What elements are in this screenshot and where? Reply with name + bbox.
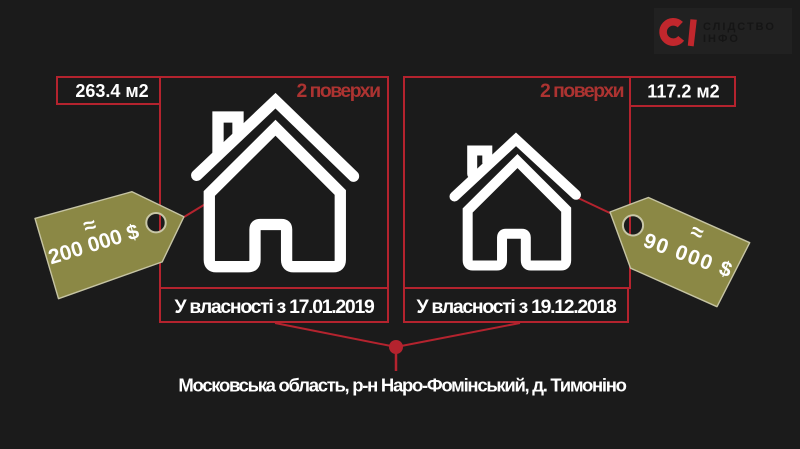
svg-text:117.2 м2: 117.2 м2 bbox=[647, 82, 719, 102]
svg-text:У власності з 17.01.2019: У власності з 17.01.2019 bbox=[175, 296, 375, 318]
svg-text:263.4 м2: 263.4 м2 bbox=[75, 81, 148, 101]
svg-text:ІНФО: ІНФО bbox=[703, 33, 740, 45]
svg-text:2 поверхи: 2 поверхи bbox=[297, 80, 381, 102]
svg-text:СЛІДСТВО: СЛІДСТВО bbox=[703, 21, 776, 33]
svg-text:Московська область, р-н Наро-Ф: Московська область, р-н Наро-Фомінський,… bbox=[178, 375, 626, 396]
svg-text:2 поверхи: 2 поверхи bbox=[540, 80, 624, 102]
svg-text:У власності з 19.12.2018: У власності з 19.12.2018 bbox=[417, 296, 617, 318]
